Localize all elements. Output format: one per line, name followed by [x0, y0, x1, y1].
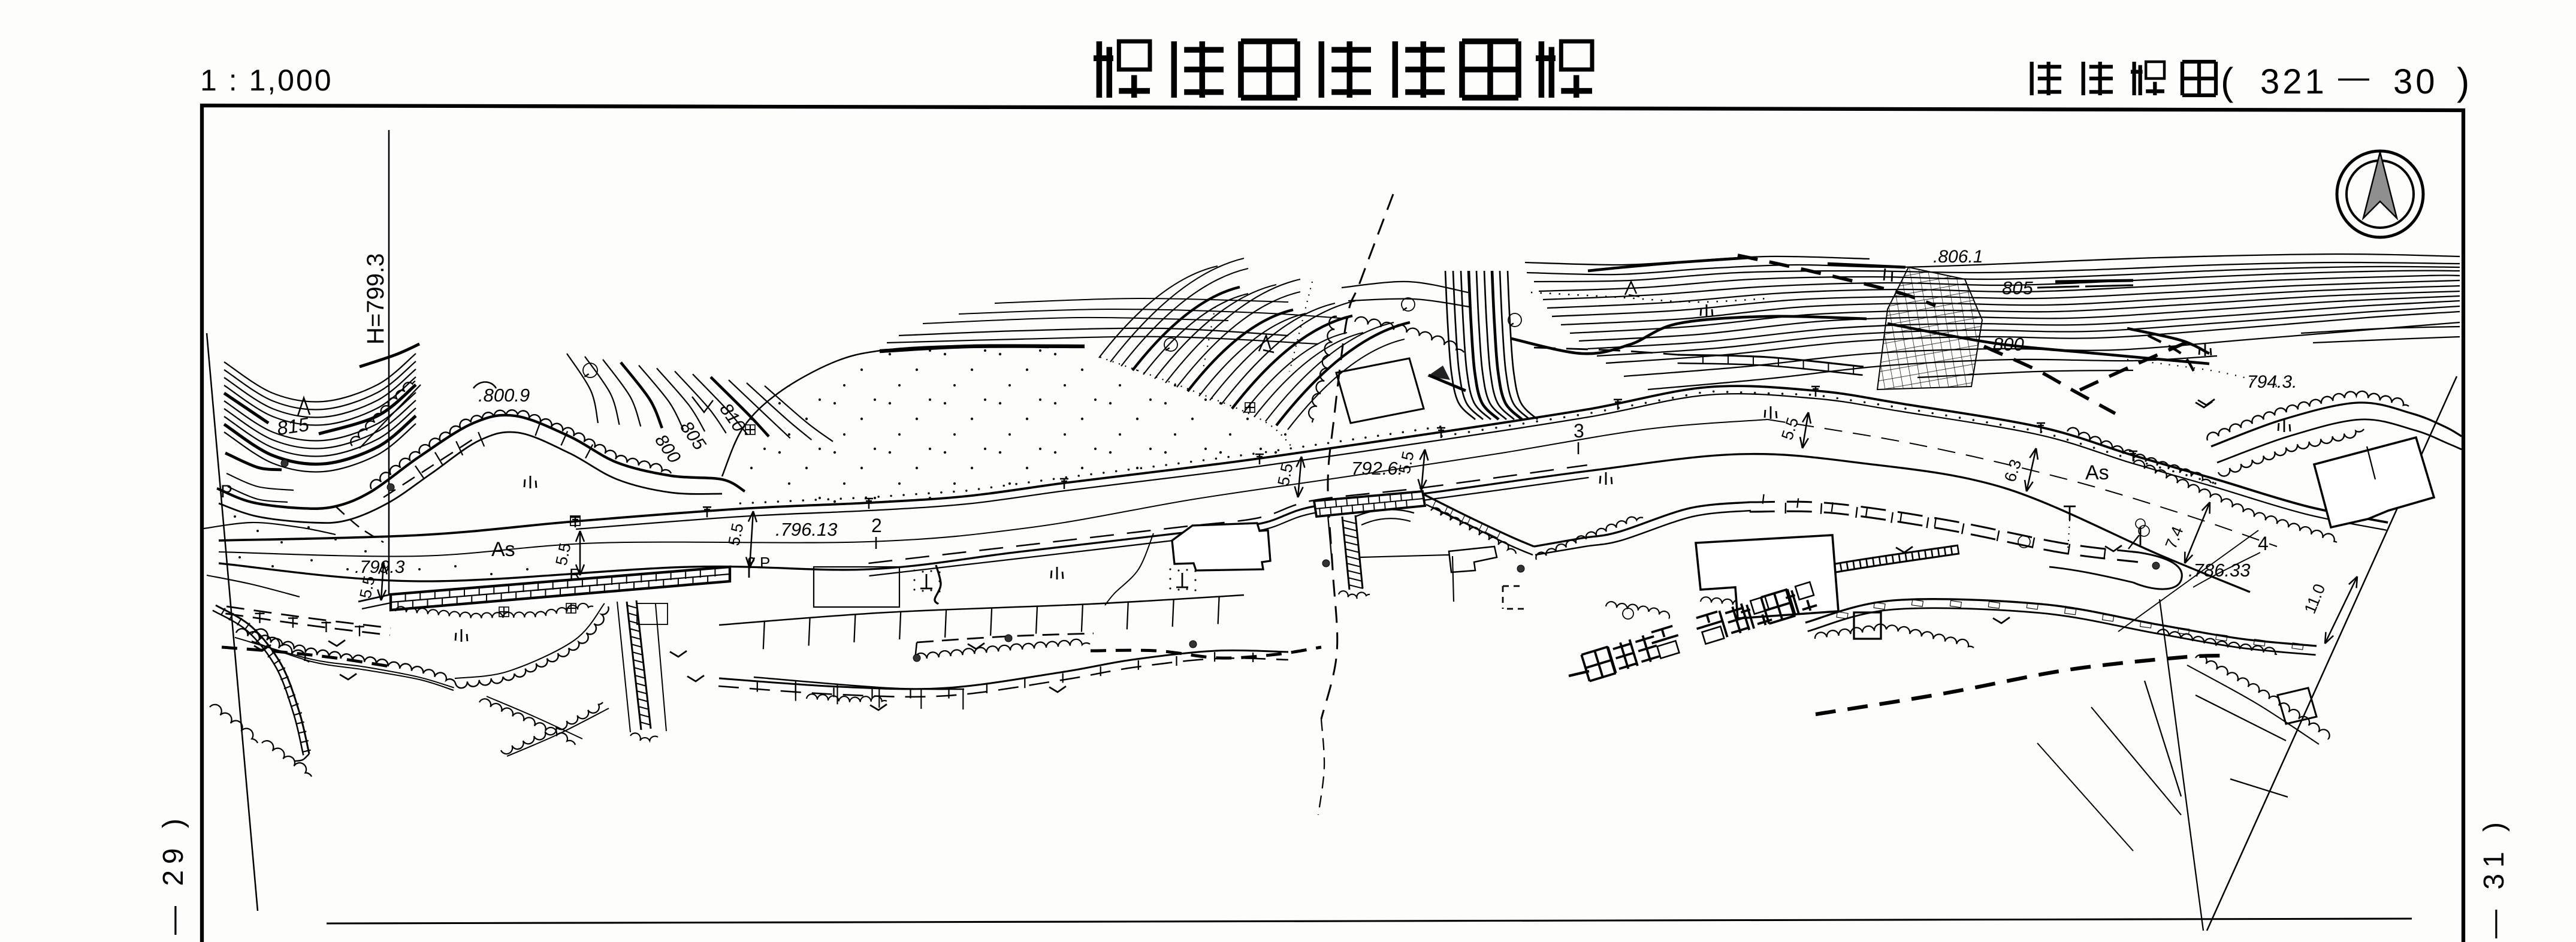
- svg-text:—: —: [2338, 60, 2369, 95]
- svg-text:794.3.: 794.3.: [2247, 372, 2297, 392]
- svg-text:4: 4: [2258, 533, 2269, 554]
- svg-text:As: As: [491, 538, 515, 561]
- svg-text:30: 30: [2393, 62, 2438, 101]
- svg-text:815: 815: [276, 413, 310, 439]
- svg-text:.800.9: .800.9: [478, 385, 530, 406]
- svg-text:P: P: [221, 482, 232, 502]
- svg-text:— 31 ): — 31 ): [2478, 816, 2510, 938]
- svg-text:1 : 1,000: 1 : 1,000: [200, 64, 333, 97]
- svg-text:R: R: [569, 565, 581, 584]
- svg-text:As: As: [2085, 461, 2109, 484]
- svg-text:2: 2: [871, 515, 882, 536]
- svg-text:.806.1: .806.1: [1933, 247, 1983, 267]
- svg-text:792.6.: 792.6.: [1351, 458, 1403, 479]
- svg-text:805: 805: [2002, 277, 2033, 298]
- svg-text:H=799.3: H=799.3: [363, 253, 389, 345]
- svg-text:.799.3: .799.3: [355, 557, 405, 577]
- svg-text:321: 321: [2260, 62, 2327, 101]
- svg-text:— 29 ): — 29 ): [158, 813, 189, 935]
- svg-text:3: 3: [1574, 420, 1584, 442]
- svg-text:(: (: [2221, 60, 2233, 103]
- svg-text:P: P: [760, 554, 770, 572]
- svg-text:.786.33: .786.33: [2188, 560, 2250, 581]
- svg-text:.796.13: .796.13: [775, 519, 837, 540]
- svg-text:): ): [2457, 60, 2469, 103]
